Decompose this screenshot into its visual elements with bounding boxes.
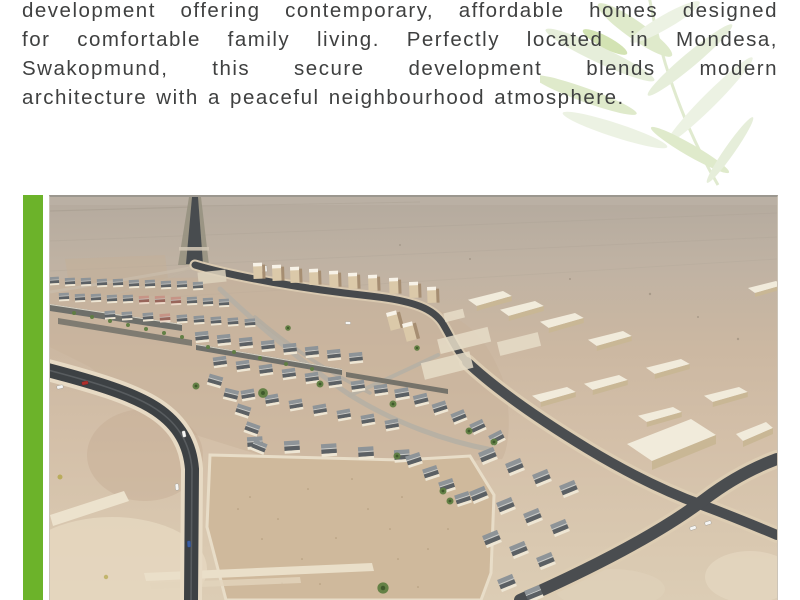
green-accent-bar bbox=[23, 195, 43, 600]
page: development offering contemporary, affor… bbox=[0, 0, 800, 600]
aerial-scene bbox=[50, 197, 777, 600]
paragraph-line: architecture with a peaceful neighbourho… bbox=[22, 83, 778, 112]
paragraph-line: development offering contemporary, affor… bbox=[22, 0, 778, 25]
paragraph-line: for comfortable family living. Perfectly… bbox=[22, 25, 778, 54]
open-lot bbox=[207, 455, 494, 600]
aerial-photo bbox=[49, 195, 778, 600]
intro-paragraph: development offering contemporary, affor… bbox=[22, 0, 778, 112]
paragraph-line: Swakopmund, this secure development blen… bbox=[22, 54, 778, 83]
